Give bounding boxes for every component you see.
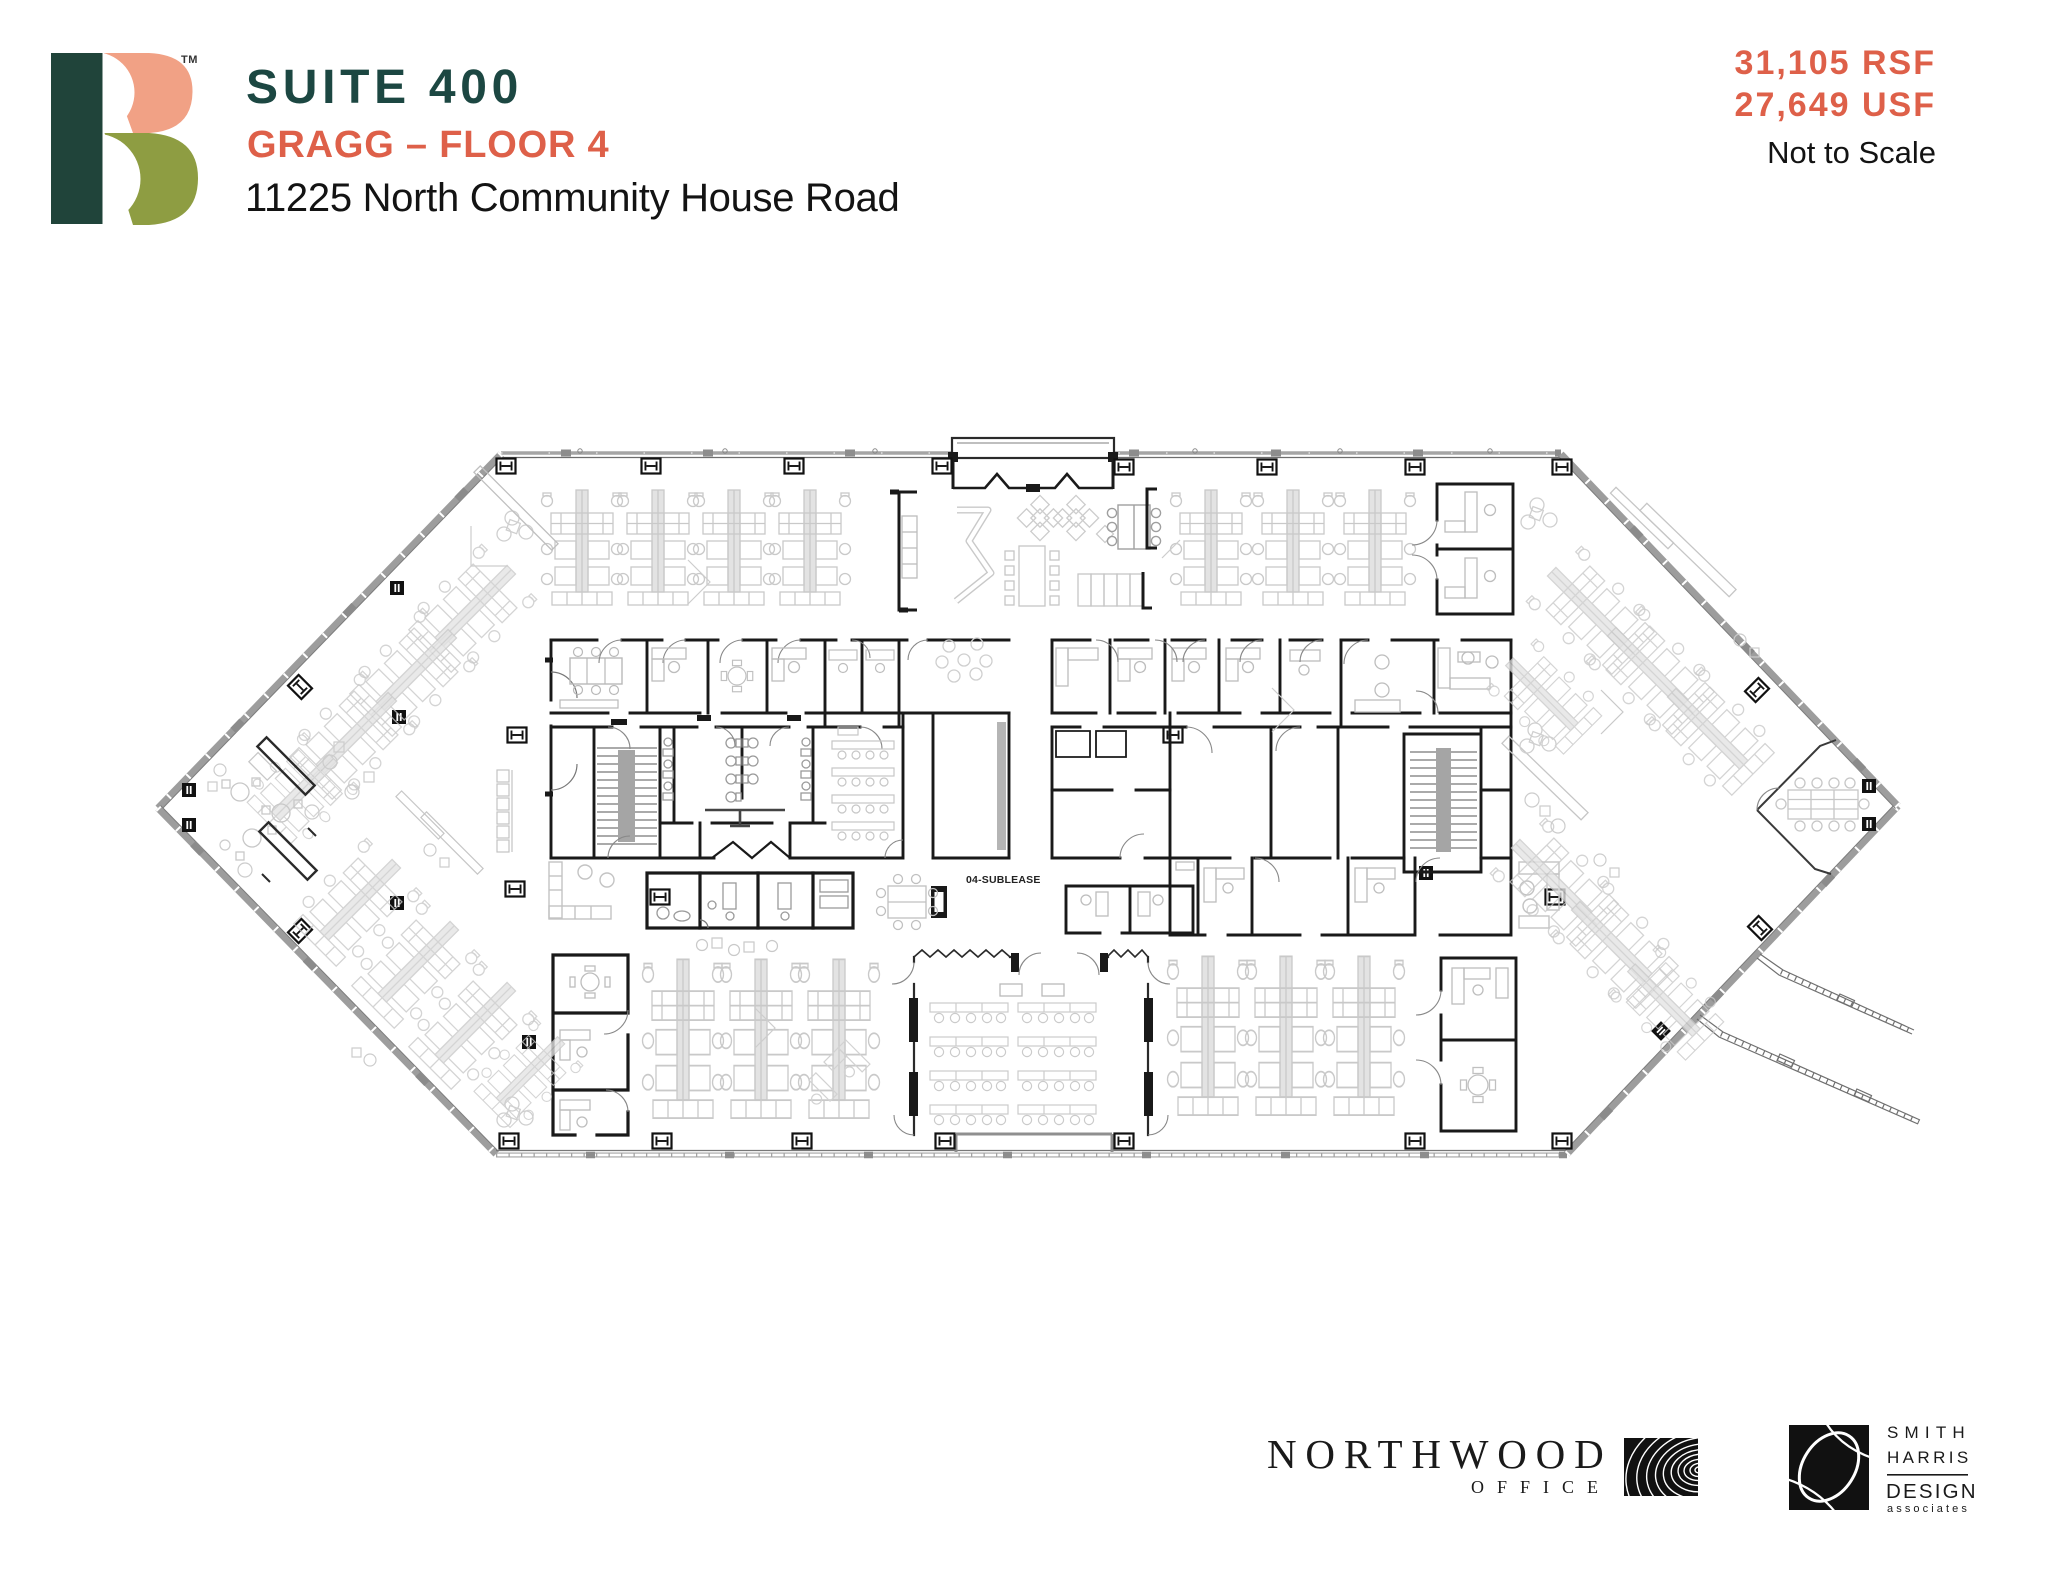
svg-text:04-SUBLEASE: 04-SUBLEASE [966,874,1041,886]
